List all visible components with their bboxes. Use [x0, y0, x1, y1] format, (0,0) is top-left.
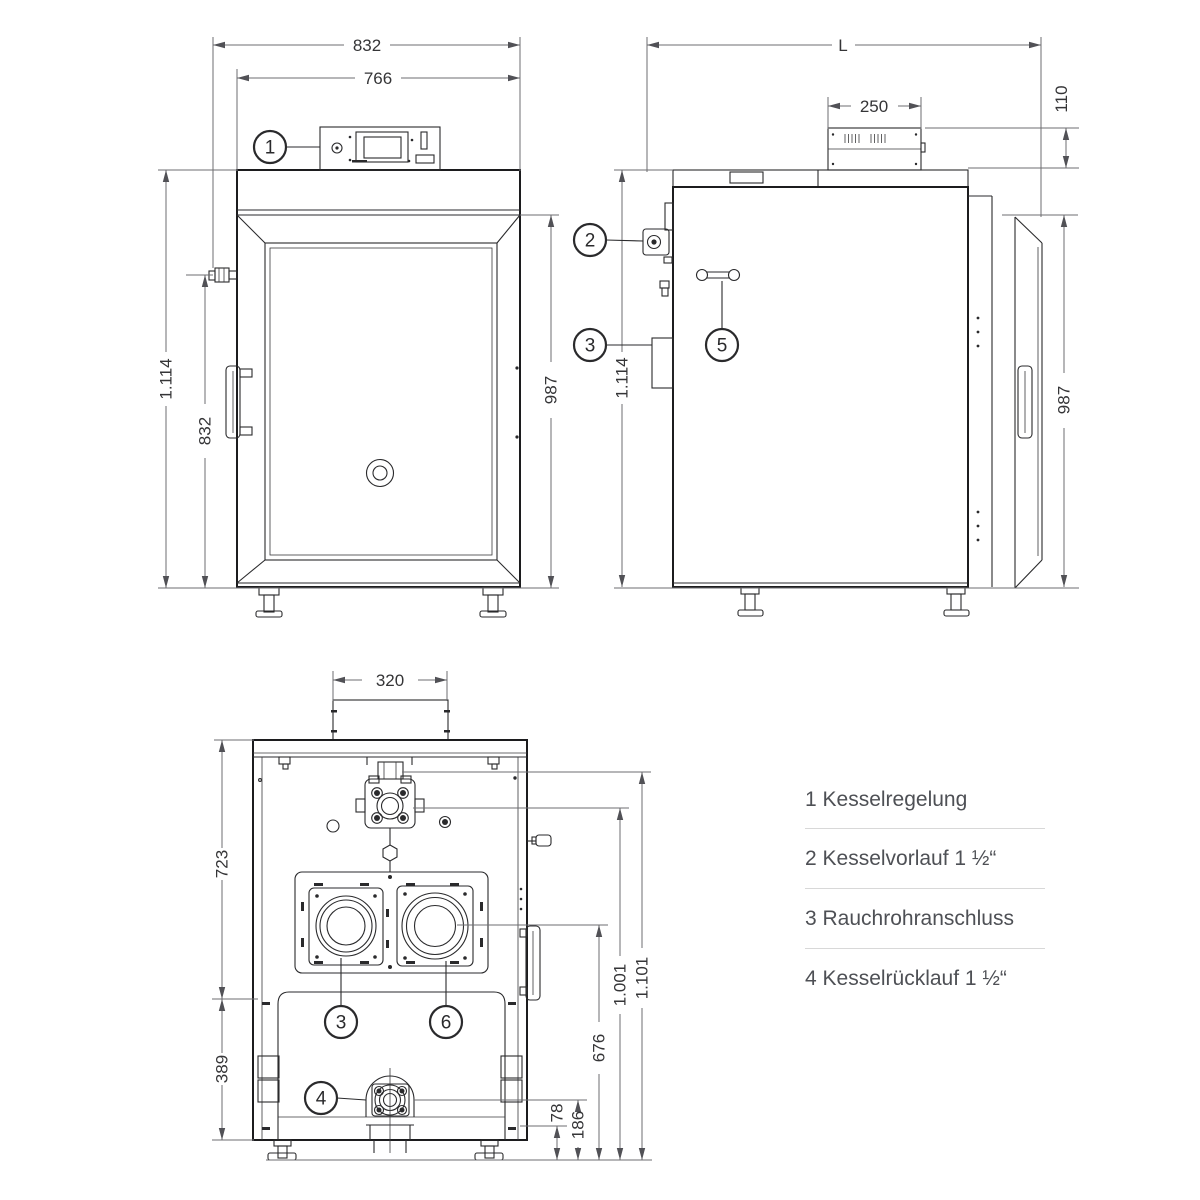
technical-drawing: 832 766 1.114 832 987	[0, 0, 1200, 1200]
rear-view: 320 723 389 78 186	[212, 671, 652, 1160]
dim-label: 832	[196, 417, 215, 445]
flow-connection-flange	[356, 757, 424, 872]
front-side-fitting	[209, 268, 237, 282]
rear-port-small	[327, 820, 339, 832]
dim-label: 250	[860, 97, 888, 116]
dim-label: 186	[569, 1111, 588, 1139]
dim-side-door-height: 987	[1002, 215, 1078, 587]
rear-sensor-dot	[440, 817, 451, 828]
dim-front-fitting-height: 832	[186, 275, 215, 588]
boiler-control-panel	[320, 127, 440, 170]
legend-item-rauchrohranschluss: 3 Rauchrohranschluss	[805, 889, 1045, 949]
callout-2: 2	[574, 224, 643, 256]
callout-number: 3	[585, 336, 596, 357]
callout-1: 1	[254, 131, 320, 163]
rear-flue-duct	[331, 700, 450, 740]
rear-right-handle	[520, 926, 540, 1000]
rear-feet	[268, 1140, 503, 1160]
callout-number: 6	[441, 1013, 452, 1034]
dim-front-overall-height: 1.114	[157, 170, 238, 588]
dim-control-unit-height: 110	[925, 85, 1079, 168]
front-boiler-body	[237, 170, 520, 587]
callout-4: 4	[305, 1082, 366, 1114]
dim-flue-duct-width: 320	[333, 671, 447, 701]
dim-label: 320	[376, 671, 404, 690]
front-door-handle	[226, 366, 252, 438]
legend: 1 Kesselregelung 2 Kesselvorlauf 1 ½“ 3 …	[805, 789, 1045, 990]
legend-item-kesselruecklauf: 4 Kesselrücklauf 1 ½“	[805, 949, 1045, 990]
dim-label: 1.001	[611, 964, 630, 1007]
dim-label: 987	[542, 376, 561, 404]
flow-connection-fitting	[643, 203, 673, 296]
dim-label: 832	[353, 36, 381, 55]
dim-label: 676	[590, 1034, 609, 1062]
callout-3-rear: 3	[325, 958, 357, 1038]
side-view: L 250 110 1.114 987	[574, 36, 1079, 616]
callout-5: 5	[706, 281, 738, 361]
rear-flue-flange-plate	[295, 872, 488, 973]
dim-label: 987	[1055, 386, 1074, 414]
side-front-door	[1015, 217, 1042, 588]
dim-label: 766	[364, 69, 392, 88]
dim-rear-lower-height: 389	[212, 999, 254, 1140]
flue-pipe-connection	[652, 338, 673, 388]
callout-3-side: 3	[574, 329, 652, 361]
legend-item-kesselvorlauf: 2 Kesselvorlauf 1 ½“	[805, 829, 1045, 889]
cleaning-tool	[697, 270, 740, 281]
dim-label: 78	[548, 1104, 567, 1123]
side-feet	[738, 587, 969, 616]
callout-number: 1	[265, 138, 276, 159]
flue-port-left	[309, 888, 383, 965]
side-boiler-body	[673, 170, 992, 587]
dim-side-length: L	[647, 36, 1041, 217]
dim-label: 110	[1052, 85, 1071, 112]
flue-port-right	[397, 886, 473, 966]
callout-number: 2	[585, 231, 596, 252]
callout-number: 5	[717, 336, 728, 357]
side-control-unit	[828, 128, 925, 170]
dim-label: 723	[213, 850, 232, 878]
callout-number: 3	[336, 1013, 347, 1034]
dim-label: 1.114	[157, 358, 176, 399]
dim-label: 389	[213, 1055, 232, 1083]
type-label-plate	[730, 172, 763, 183]
front-view: 832 766 1.114 832 987	[157, 36, 561, 617]
legend-item-kesselregelung: 1 Kesselregelung	[805, 789, 1045, 829]
dim-label: 1.101	[633, 957, 652, 1000]
dim-rear-upper-height: 723	[212, 740, 258, 999]
rear-side-plug	[527, 835, 551, 846]
boiler-dimension-drawing: 832 766 1.114 832 987	[0, 0, 1200, 1200]
dim-label: L	[838, 36, 847, 55]
dim-control-unit-width: 250	[828, 97, 921, 129]
dim-label: 1.114	[613, 357, 632, 398]
front-door-knob	[367, 460, 394, 487]
front-feet	[256, 587, 506, 617]
dim-front-door-height: 987	[520, 215, 561, 588]
callout-number: 4	[316, 1089, 327, 1110]
